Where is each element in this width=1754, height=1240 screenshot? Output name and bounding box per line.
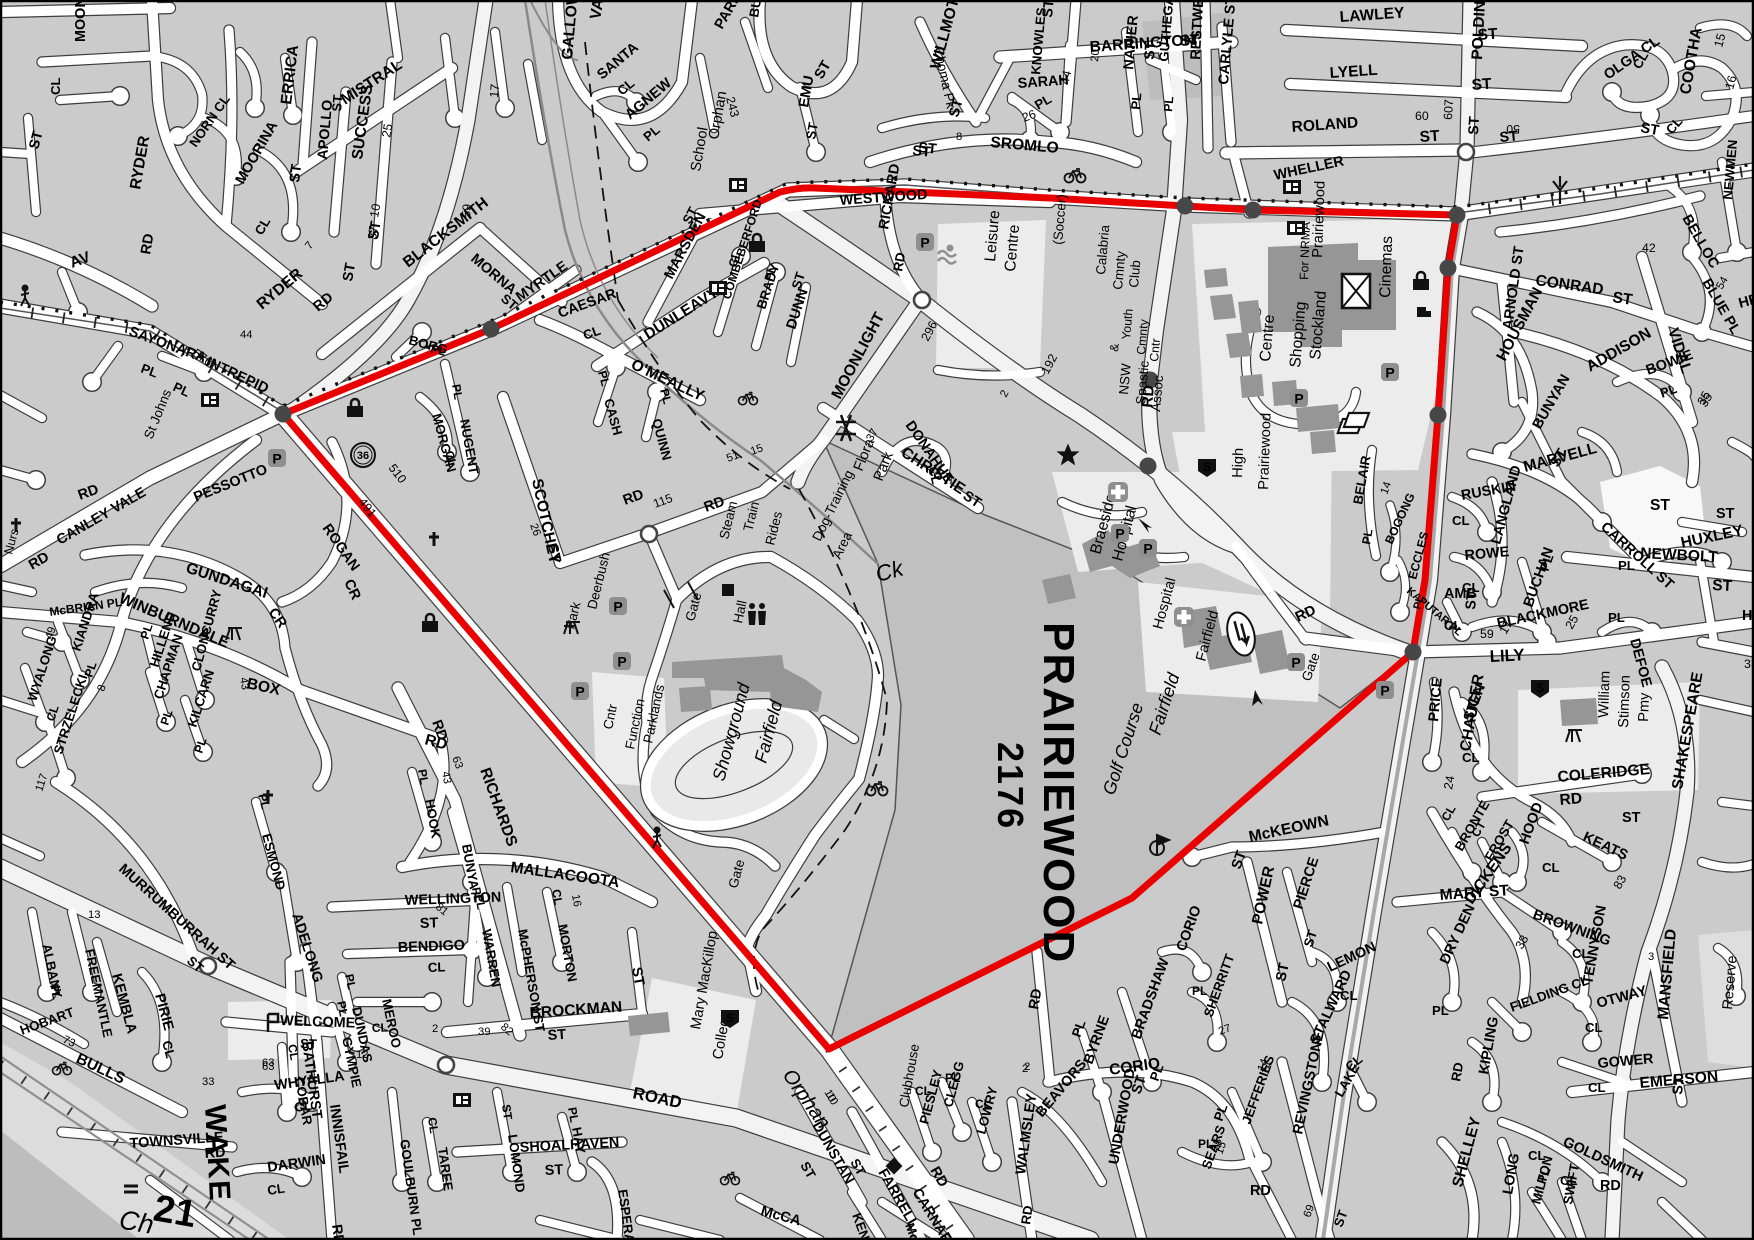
svg-text:ST: ST bbox=[1471, 76, 1493, 94]
svg-text:CL: CL bbox=[1560, 1173, 1578, 1188]
svg-text:CL: CL bbox=[266, 1181, 286, 1198]
svg-text:PL: PL bbox=[1432, 1003, 1449, 1018]
svg-text:PL: PL bbox=[449, 383, 465, 401]
svg-text:59: 59 bbox=[1480, 627, 1494, 641]
svg-text:21: 21 bbox=[150, 1188, 199, 1237]
svg-text:PL: PL bbox=[945, 1071, 960, 1085]
svg-text:13: 13 bbox=[88, 909, 100, 921]
svg-text:P: P bbox=[1385, 365, 1394, 381]
svg-text:PL: PL bbox=[1192, 984, 1207, 998]
svg-text:ST: ST bbox=[1466, 116, 1483, 135]
svg-text:ST: ST bbox=[499, 1103, 515, 1121]
svg-text:PL: PL bbox=[565, 1106, 581, 1124]
svg-text:43: 43 bbox=[439, 770, 453, 784]
svg-text:25: 25 bbox=[379, 122, 395, 138]
svg-text:P: P bbox=[1294, 391, 1303, 407]
svg-text:P: P bbox=[1291, 655, 1300, 671]
svg-text:P: P bbox=[1115, 526, 1124, 542]
svg-text:59: 59 bbox=[459, 203, 474, 218]
svg-text:CL: CL bbox=[1542, 860, 1560, 875]
svg-text:PL: PL bbox=[1359, 528, 1375, 546]
svg-text:P: P bbox=[613, 599, 622, 615]
svg-text:Prairiewood: Prairiewood bbox=[1310, 181, 1329, 259]
svg-text:P: P bbox=[617, 654, 626, 670]
svg-text:ST: ST bbox=[1639, 120, 1660, 139]
svg-text:LILY: LILY bbox=[1489, 645, 1525, 666]
svg-text:ST: ST bbox=[547, 1027, 567, 1044]
svg-text:60: 60 bbox=[1415, 109, 1429, 123]
svg-text:33: 33 bbox=[202, 1076, 214, 1088]
svg-text:607: 607 bbox=[1441, 99, 1456, 120]
svg-text:37: 37 bbox=[365, 225, 381, 240]
svg-text:William: William bbox=[1596, 671, 1614, 719]
svg-text:2: 2 bbox=[1024, 1061, 1030, 1073]
svg-text:S: S bbox=[1203, 460, 1211, 474]
svg-text:CL: CL bbox=[48, 77, 63, 95]
svg-text:WAKE: WAKE bbox=[198, 1104, 236, 1204]
svg-text:CL: CL bbox=[549, 888, 566, 906]
svg-text:42: 42 bbox=[1642, 241, 1656, 255]
svg-text:Prairiewood: Prairiewood bbox=[1256, 413, 1275, 491]
svg-text:24: 24 bbox=[1441, 774, 1457, 790]
svg-text:High: High bbox=[1230, 448, 1247, 479]
svg-text:44: 44 bbox=[240, 329, 252, 341]
svg-text:RD: RD bbox=[1250, 1183, 1271, 1199]
svg-text:CL: CL bbox=[428, 959, 446, 975]
svg-text:RD: RD bbox=[1559, 790, 1583, 809]
svg-text:Club: Club bbox=[1126, 260, 1143, 289]
svg-text:PL: PL bbox=[1618, 558, 1635, 573]
svg-text:CL: CL bbox=[975, 1097, 991, 1111]
svg-text:8: 8 bbox=[956, 131, 962, 143]
svg-text:2176: 2176 bbox=[990, 742, 1031, 830]
svg-text:ST: ST bbox=[1622, 810, 1641, 826]
svg-text:PRAIRIEWOOD: PRAIRIEWOOD bbox=[1034, 622, 1083, 964]
svg-text:ST: ST bbox=[1712, 577, 1733, 595]
svg-text:17: 17 bbox=[487, 83, 502, 98]
svg-text:10: 10 bbox=[367, 202, 383, 218]
svg-text:ST: ST bbox=[420, 915, 439, 932]
svg-text:ST: ST bbox=[918, 140, 938, 158]
svg-text:ST: ST bbox=[1650, 497, 1670, 514]
svg-text:PL: PL bbox=[1128, 92, 1144, 110]
svg-text:Ch: Ch bbox=[117, 1204, 156, 1240]
svg-text:CL: CL bbox=[1452, 513, 1470, 528]
svg-text:RD: RD bbox=[1139, 384, 1158, 408]
svg-text:CL: CL bbox=[915, 1084, 931, 1098]
svg-text:ST: ST bbox=[1142, 41, 1159, 60]
svg-text:BENDIGO: BENDIGO bbox=[398, 938, 466, 956]
svg-text:P: P bbox=[1380, 683, 1389, 699]
svg-text:ST: ST bbox=[544, 1162, 563, 1179]
svg-text:P: P bbox=[1143, 541, 1152, 557]
svg-text:LYELL: LYELL bbox=[1329, 62, 1378, 82]
svg-text:MOONBI: MOONBI bbox=[73, 0, 89, 42]
svg-text:RD: RD bbox=[328, 1223, 347, 1240]
svg-text:ST: ST bbox=[1463, 590, 1481, 610]
svg-text:P: P bbox=[272, 451, 281, 467]
svg-text:S: S bbox=[1536, 681, 1544, 695]
svg-text:CL: CL bbox=[1588, 1080, 1606, 1095]
svg-text:RD: RD bbox=[1018, 1204, 1036, 1225]
svg-text:ST: ST bbox=[1499, 128, 1519, 146]
svg-text:36: 36 bbox=[357, 450, 369, 462]
svg-text:ST: ST bbox=[340, 262, 359, 283]
svg-text:CL: CL bbox=[372, 1020, 388, 1035]
svg-text:ST: ST bbox=[1419, 128, 1441, 146]
svg-text:ST: ST bbox=[1716, 506, 1735, 522]
svg-text:Cinemas: Cinemas bbox=[1377, 236, 1396, 299]
svg-text:PL: PL bbox=[1161, 96, 1176, 113]
svg-text:2: 2 bbox=[432, 1023, 438, 1035]
svg-text:20: 20 bbox=[1089, 49, 1102, 62]
svg-text:ST: ST bbox=[287, 163, 305, 183]
svg-text:Pmy: Pmy bbox=[1636, 692, 1653, 722]
svg-text:3: 3 bbox=[1648, 951, 1654, 963]
svg-text:PL: PL bbox=[469, 886, 485, 904]
svg-text:ST: ST bbox=[628, 966, 647, 987]
svg-text:S: S bbox=[726, 1011, 734, 1025]
svg-text:P: P bbox=[575, 684, 584, 700]
svg-text:CL: CL bbox=[1572, 946, 1590, 961]
svg-text:CL: CL bbox=[425, 1116, 441, 1134]
svg-text:P: P bbox=[920, 235, 929, 251]
svg-text:CL: CL bbox=[293, 1098, 313, 1115]
svg-text:ST: ST bbox=[1611, 289, 1634, 309]
svg-text:RD: RD bbox=[1600, 1178, 1621, 1194]
svg-text:Cntr: Cntr bbox=[1147, 338, 1163, 362]
svg-text:CL: CL bbox=[1585, 1020, 1603, 1035]
svg-text:NSW: NSW bbox=[1116, 362, 1134, 395]
svg-text:Youth: Youth bbox=[1119, 308, 1136, 340]
svg-text:63: 63 bbox=[262, 1057, 274, 1069]
svg-text:PL: PL bbox=[1608, 610, 1625, 625]
svg-text:ST: ST bbox=[803, 121, 821, 140]
svg-text:39: 39 bbox=[478, 1026, 490, 1038]
svg-text:16: 16 bbox=[569, 893, 583, 907]
svg-text:Stimson: Stimson bbox=[1616, 675, 1634, 728]
svg-text:12: 12 bbox=[356, 1049, 368, 1061]
svg-text:43: 43 bbox=[237, 676, 251, 690]
svg-text:PL: PL bbox=[415, 768, 431, 786]
